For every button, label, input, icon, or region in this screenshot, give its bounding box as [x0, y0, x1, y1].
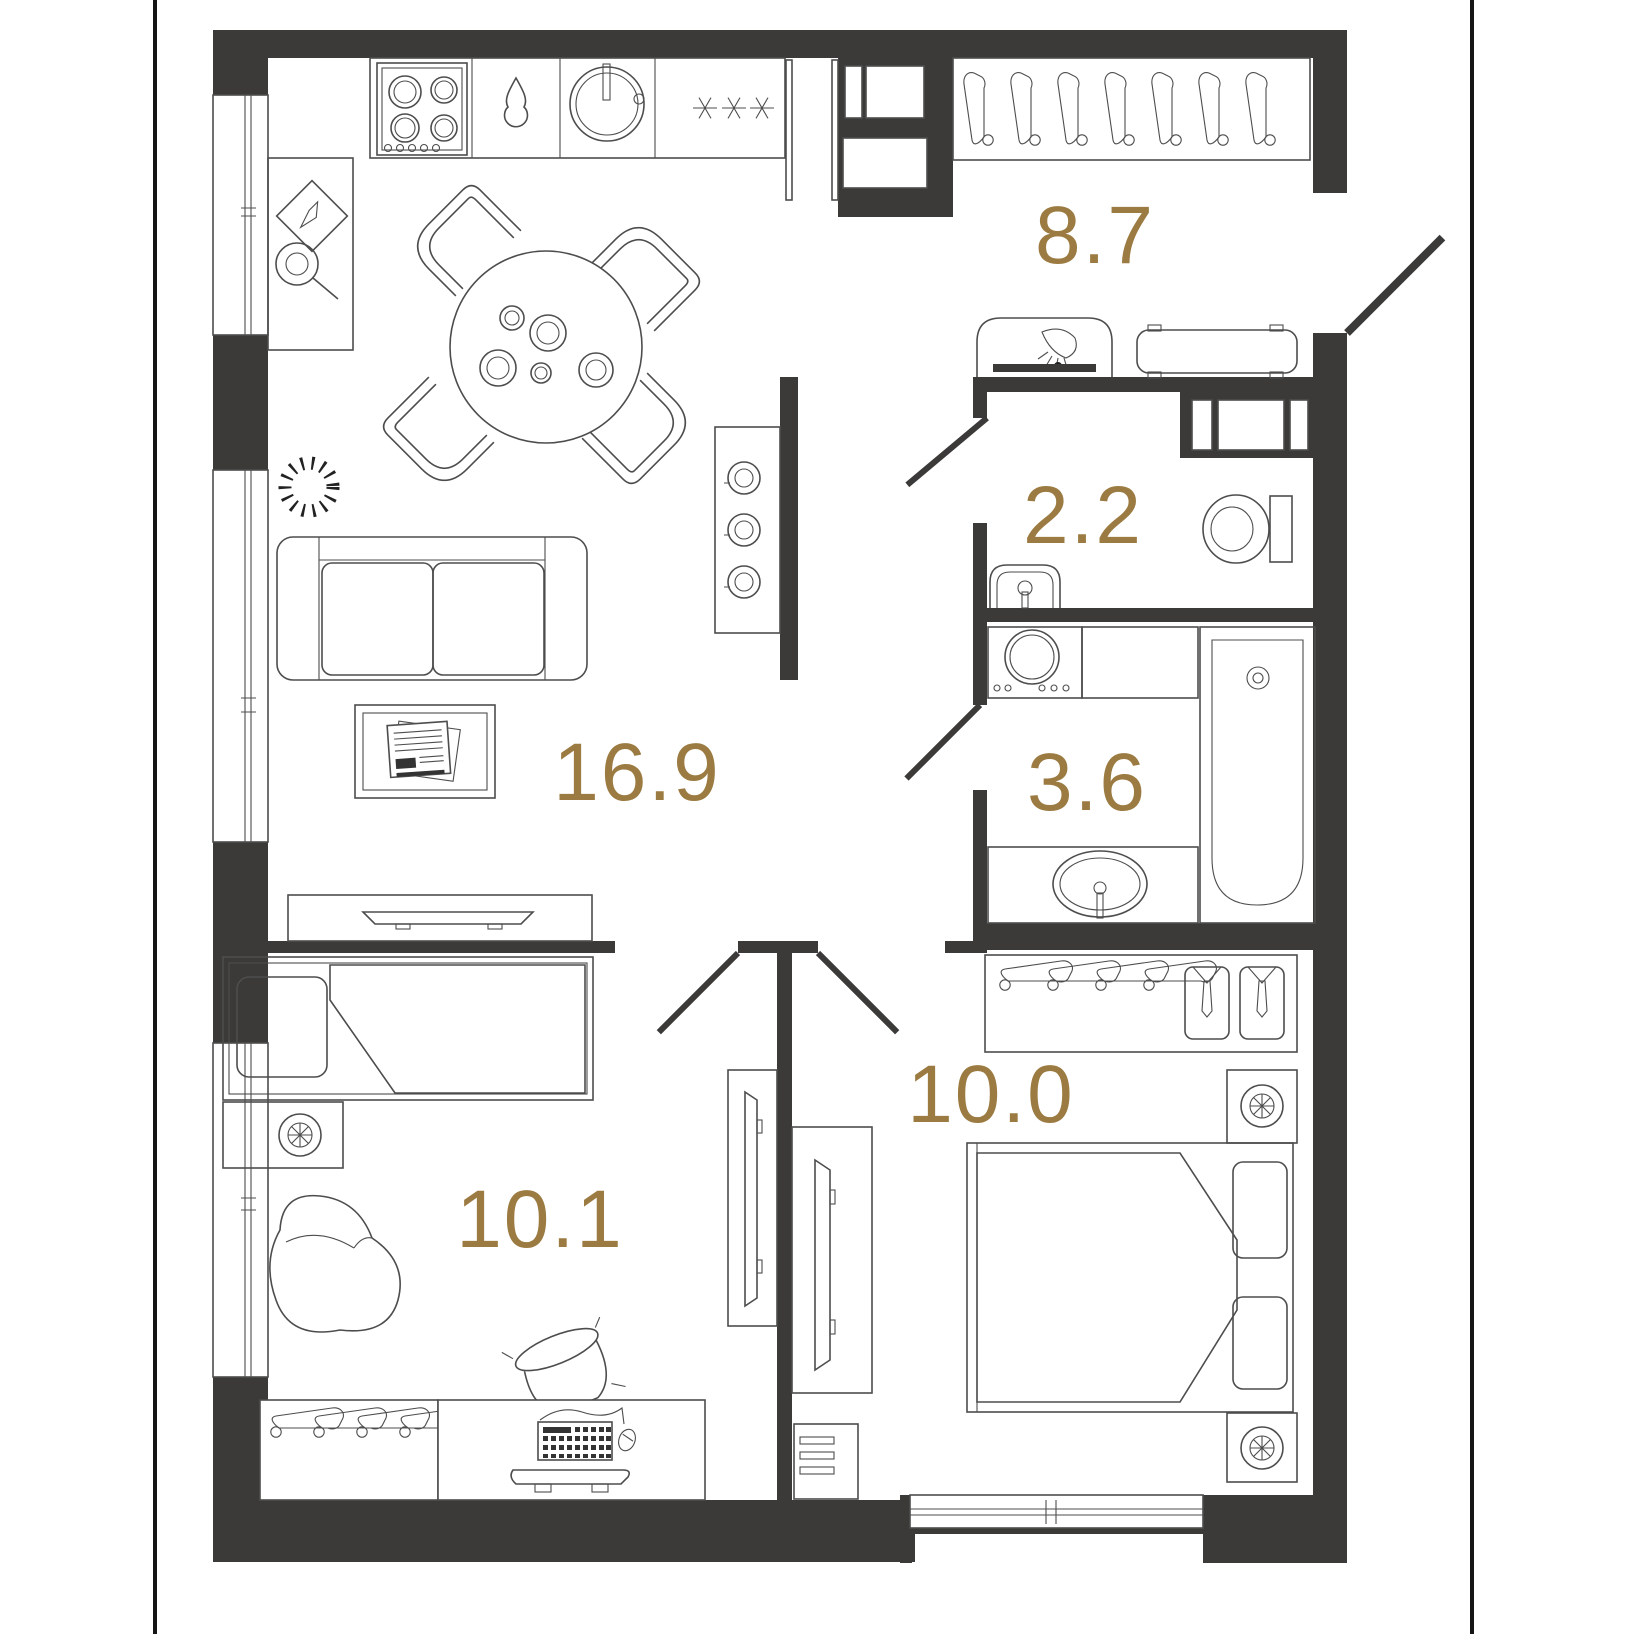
cutting-board-icon: [277, 181, 348, 252]
area-label-bathroom: 3.6: [1027, 737, 1147, 828]
bedroom-nightstand: [1227, 1413, 1297, 1482]
beanbag-chair: [270, 1196, 400, 1332]
wc-sink-icon: [990, 565, 1060, 608]
window-left-2: [213, 470, 268, 842]
fridge-snowflakes-icon: [693, 98, 774, 119]
bathroom-sink-icon: [988, 847, 1198, 923]
floor-plan-drawing: 16.9 8.7 2.2 3.6 10.0 10.1: [0, 0, 1634, 1634]
coffee-table: [355, 705, 495, 798]
toilet-icon: [1203, 495, 1292, 563]
wc-shaft-block: [1180, 392, 1315, 458]
window-left-1: [213, 95, 268, 335]
walls: [213, 30, 1347, 1563]
hallway-bench: [1137, 325, 1297, 378]
kids-tv-panel: [728, 1070, 777, 1326]
stove-icon: [377, 63, 467, 155]
area-label-bedroom: 10.0: [907, 1049, 1075, 1140]
kids-room-door: [657, 951, 740, 1034]
single-bed: [223, 957, 593, 1100]
hallway-wardrobe: [953, 58, 1310, 160]
entrance-door: [1344, 235, 1445, 336]
tv-bench: [288, 895, 592, 941]
area-label-hallway: 8.7: [1035, 190, 1155, 281]
bathtub-icon: [1200, 627, 1315, 923]
floor-plan-page: 16.9 8.7 2.2 3.6 10.0 10.1: [0, 0, 1634, 1634]
washing-machine-icon: [988, 627, 1198, 698]
sofa: [277, 537, 587, 680]
page-border-right: [1470, 0, 1474, 1634]
area-label-kids-room: 10.1: [456, 1174, 624, 1265]
window-bedroom: [910, 1495, 1203, 1528]
sconce-icon: [1038, 329, 1076, 370]
bathroom-door: [904, 703, 982, 781]
living-partition-wall: [780, 377, 798, 680]
desk: [438, 1400, 705, 1500]
area-label-wc: 2.2: [1023, 470, 1143, 561]
sink-drop-icon: [505, 78, 528, 127]
washing-basin-icon: [570, 64, 644, 141]
wc-door: [905, 416, 989, 487]
speaker-shelf: [715, 427, 780, 633]
bedroom-tv-cabinet: [792, 1127, 872, 1393]
double-bed: [967, 1143, 1293, 1412]
bedroom-door: [816, 951, 899, 1034]
pan-icon: [276, 243, 338, 299]
dining-table: [379, 181, 703, 491]
area-label-living: 16.9: [553, 727, 721, 818]
corridor-dresser: [794, 1424, 858, 1499]
page-border-left: [153, 0, 157, 1634]
kitchen-opening-frame: [786, 60, 838, 200]
entry-shaft-block: [838, 58, 953, 217]
window-left-3: [213, 1043, 268, 1377]
bedroom-wardrobe: [985, 955, 1297, 1052]
plant-icon: [285, 463, 333, 511]
shoe-console: [977, 318, 1112, 377]
bedroom-nightstand: [1227, 1070, 1297, 1143]
